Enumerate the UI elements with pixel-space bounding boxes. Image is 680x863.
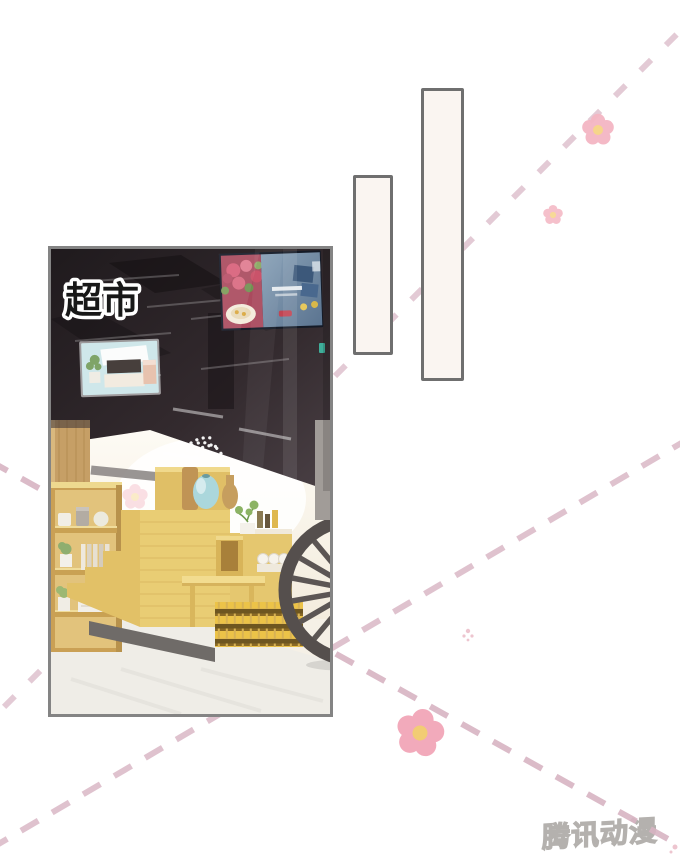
- panel-label: 超市: [65, 279, 139, 321]
- comic-page: { "panel": { "label": "超市", "scene": "su…: [0, 0, 680, 863]
- flower-mid-right: [543, 205, 563, 224]
- speech-bubble-large: [421, 88, 464, 381]
- sparkle-center: [462, 629, 473, 642]
- product-display-screen: [79, 339, 161, 398]
- flower-top-right: [582, 114, 614, 145]
- comic-panel: 超市: [48, 246, 333, 717]
- speech-bubble-small: [353, 175, 393, 355]
- tencent-comics-watermark: 腾讯动漫: [542, 808, 680, 857]
- panel-illustration: 超市: [51, 249, 330, 714]
- flower-bottom: [392, 704, 448, 759]
